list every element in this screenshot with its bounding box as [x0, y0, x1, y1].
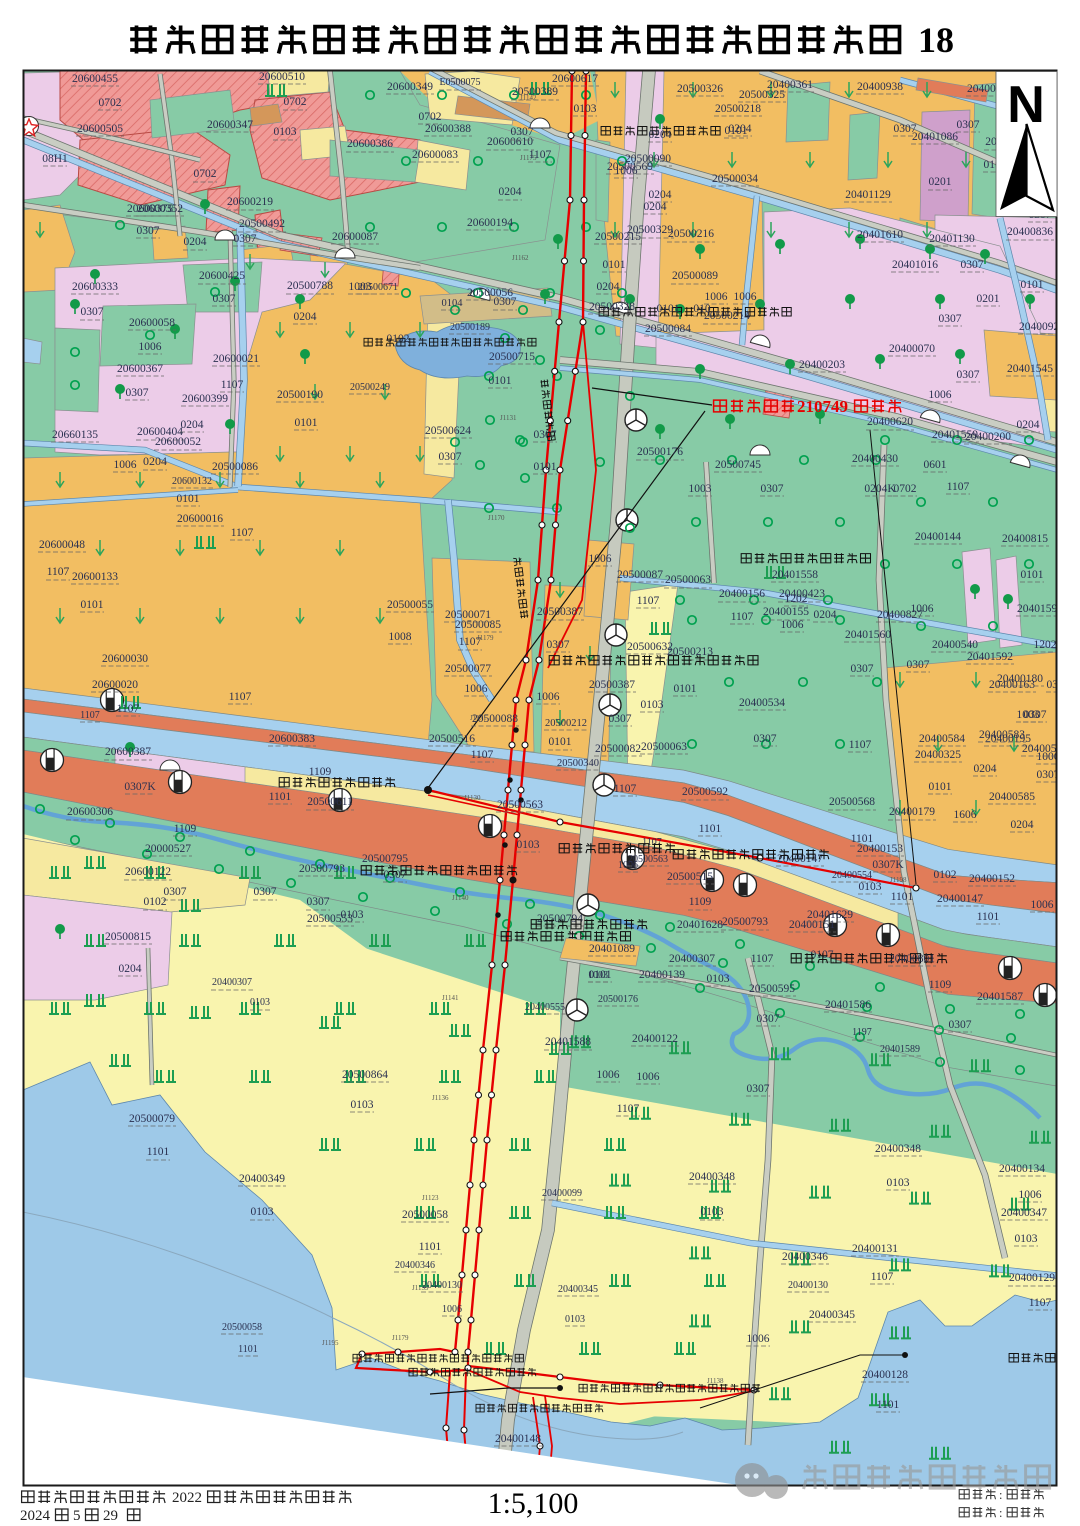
svg-text:20500063: 20500063: [641, 741, 687, 753]
svg-text:1006: 1006: [465, 683, 488, 695]
svg-text:0102: 0102: [144, 896, 167, 908]
svg-text:20400836: 20400836: [1007, 226, 1053, 238]
svg-text:20401586: 20401586: [825, 999, 871, 1011]
svg-text:0307K: 0307K: [872, 859, 904, 871]
svg-text:20500592: 20500592: [682, 786, 728, 798]
svg-text:20400099: 20400099: [542, 1188, 582, 1199]
svg-text:20600016: 20600016: [177, 513, 223, 525]
svg-text:0204: 0204: [974, 763, 997, 775]
svg-text::: :: [999, 1488, 1002, 1502]
svg-text:20401610: 20401610: [857, 229, 903, 241]
svg-text:20600030: 20600030: [102, 653, 148, 665]
svg-text:0307: 0307: [547, 639, 570, 651]
svg-text:20401588: 20401588: [545, 1036, 591, 1048]
svg-text:20500212: 20500212: [545, 718, 587, 729]
svg-text:0307: 0307: [126, 387, 149, 399]
svg-text:20500387: 20500387: [537, 606, 583, 618]
svg-text:20600387: 20600387: [105, 746, 151, 758]
svg-text:0102: 0102: [934, 869, 957, 881]
svg-text:20400156: 20400156: [719, 588, 765, 600]
svg-text:20400131: 20400131: [852, 1243, 898, 1255]
svg-text:20500492: 20500492: [239, 218, 285, 230]
svg-text:20500624: 20500624: [425, 425, 471, 437]
svg-text:J1130: J1130: [464, 794, 481, 802]
svg-text:20500815: 20500815: [105, 931, 151, 943]
svg-text:20400134: 20400134: [999, 1163, 1045, 1175]
svg-text::: :: [999, 1506, 1002, 1520]
svg-text:20400139: 20400139: [639, 969, 685, 981]
svg-text:1109: 1109: [929, 979, 952, 991]
svg-text:20500084: 20500084: [645, 323, 691, 335]
svg-text:1003: 1003: [689, 483, 712, 495]
svg-text:0702: 0702: [419, 111, 442, 123]
svg-text:20500595: 20500595: [749, 983, 795, 995]
svg-text:J1136: J1136: [432, 1094, 449, 1102]
svg-text:0204: 0204: [649, 129, 672, 141]
svg-text:20400307: 20400307: [212, 977, 252, 988]
svg-text:20400620: 20400620: [867, 416, 913, 428]
svg-text:1107: 1107: [529, 149, 552, 161]
svg-text:1606: 1606: [954, 809, 977, 821]
svg-text:08H1: 08H1: [42, 153, 68, 165]
svg-text:20400128: 20400128: [862, 1369, 908, 1381]
svg-text:1006: 1006: [734, 291, 757, 303]
svg-text:0204: 0204: [814, 609, 837, 621]
svg-text:5: 5: [73, 1508, 81, 1524]
svg-text:1006: 1006: [929, 389, 952, 401]
svg-text:0702: 0702: [99, 97, 122, 109]
svg-text:20600021: 20600021: [213, 353, 259, 365]
svg-text:20000527: 20000527: [145, 843, 191, 855]
svg-text:1107: 1107: [117, 703, 140, 715]
svg-text:20660135: 20660135: [52, 429, 98, 441]
svg-text:1109: 1109: [309, 766, 332, 778]
svg-text:20400554: 20400554: [832, 870, 872, 881]
svg-text:0204: 0204: [143, 454, 167, 468]
svg-text:20400179: 20400179: [889, 806, 935, 818]
svg-text:20500328: 20500328: [589, 301, 635, 313]
svg-text:20401628: 20401628: [677, 919, 723, 931]
svg-text:20500189: 20500189: [450, 322, 490, 333]
svg-text:20600399: 20600399: [182, 393, 228, 405]
svg-text:20500563: 20500563: [628, 854, 668, 865]
svg-text:0101: 0101: [177, 493, 200, 505]
svg-text:0307: 0307: [949, 1019, 972, 1031]
svg-text:20401545: 20401545: [1007, 363, 1053, 375]
svg-text:0204: 0204: [649, 189, 672, 201]
svg-text:1006: 1006: [705, 291, 728, 303]
svg-text:0201: 0201: [977, 293, 1000, 305]
svg-text:20400555: 20400555: [525, 1002, 565, 1013]
svg-text:0101: 0101: [295, 417, 318, 429]
svg-text:1107: 1107: [231, 527, 254, 539]
svg-text:0307: 0307: [1024, 709, 1047, 721]
svg-text:20500216: 20500216: [668, 228, 714, 240]
svg-text:20500058: 20500058: [222, 1322, 262, 1333]
svg-text:20500082: 20500082: [595, 743, 641, 755]
svg-text:1202: 1202: [785, 593, 808, 605]
svg-text:20500214: 20500214: [704, 310, 750, 322]
svg-text:20600383: 20600383: [269, 733, 315, 745]
svg-text:20500563: 20500563: [497, 799, 543, 811]
svg-text:20400534: 20400534: [739, 697, 785, 709]
svg-text:20500632: 20500632: [627, 641, 673, 653]
svg-text:1006: 1006: [442, 1304, 462, 1315]
svg-text:20600510: 20600510: [259, 71, 305, 83]
svg-text:0101: 0101: [549, 736, 572, 748]
svg-text:20500325: 20500325: [739, 89, 785, 101]
svg-text:20500793: 20500793: [299, 863, 345, 875]
svg-text:1107: 1107: [614, 783, 637, 795]
svg-text:20500611: 20500611: [307, 796, 353, 808]
svg-text:20600020: 20600020: [92, 679, 138, 691]
svg-text:1006: 1006: [637, 1071, 660, 1083]
svg-text:20400122: 20400122: [632, 1033, 678, 1045]
svg-text:0307: 0307: [757, 1013, 780, 1025]
svg-text:0307: 0307: [851, 663, 874, 675]
svg-text:0103: 0103: [351, 1099, 374, 1111]
svg-text:1006: 1006: [589, 553, 612, 565]
svg-text:20600083: 20600083: [412, 149, 458, 161]
svg-text:1107: 1107: [471, 749, 494, 761]
svg-text:1107: 1107: [642, 837, 662, 848]
svg-text:0101: 0101: [1021, 279, 1044, 291]
svg-text:20400180: 20400180: [997, 673, 1043, 685]
svg-text:20500088: 20500088: [472, 713, 518, 725]
svg-text:0204K: 0204K: [864, 483, 896, 495]
svg-text:2024: 2024: [20, 1508, 51, 1524]
svg-text:20500190: 20500190: [277, 389, 323, 401]
svg-text:20500326: 20500326: [677, 83, 723, 95]
svg-text:0307: 0307: [307, 896, 330, 908]
svg-text:1107: 1107: [221, 379, 244, 391]
svg-text:1101: 1101: [699, 823, 722, 835]
svg-text:0307: 0307: [213, 293, 236, 305]
svg-text:20600219: 20600219: [227, 196, 273, 208]
svg-text:0103: 0103: [274, 126, 297, 138]
svg-text:0103: 0103: [887, 1177, 910, 1189]
svg-text:1109: 1109: [689, 896, 712, 908]
svg-text:0101: 0101: [657, 303, 680, 315]
svg-text:0204: 0204: [119, 963, 142, 975]
svg-text:20500215: 20500215: [595, 231, 641, 243]
svg-text:0307: 0307: [534, 429, 557, 441]
svg-text:20500788: 20500788: [287, 280, 333, 292]
svg-text:1006: 1006: [597, 1069, 620, 1081]
svg-text:1101: 1101: [269, 791, 292, 803]
svg-text:0307: 0307: [939, 313, 962, 325]
svg-text:0307: 0307: [747, 1083, 770, 1095]
svg-text:1006: 1006: [1031, 899, 1054, 911]
svg-text:20400430: 20400430: [852, 453, 898, 465]
svg-text:1107: 1107: [947, 481, 970, 493]
svg-text:20400203: 20400203: [799, 359, 845, 371]
svg-text:1107: 1107: [80, 710, 100, 721]
svg-text:0204: 0204: [184, 236, 207, 248]
svg-text:1008: 1008: [389, 631, 412, 643]
svg-text:20400070: 20400070: [889, 343, 935, 355]
svg-text:0101: 0101: [1021, 569, 1044, 581]
svg-text:20400540: 20400540: [932, 639, 978, 651]
svg-text:J1179: J1179: [392, 1334, 409, 1342]
svg-text:20401558: 20401558: [772, 569, 818, 581]
svg-text:E0500075: E0500075: [439, 77, 480, 88]
svg-text:20400130: 20400130: [422, 1280, 462, 1291]
svg-text:0307: 0307: [907, 659, 930, 671]
svg-text:20500077: 20500077: [445, 663, 491, 675]
svg-text:0307: 0307: [234, 233, 257, 245]
svg-text:20500864: 20500864: [342, 1069, 388, 1081]
svg-text:0307K: 0307K: [124, 781, 156, 793]
svg-text:1107: 1107: [637, 595, 660, 607]
svg-text:J1170: J1170: [488, 514, 505, 522]
svg-text:20500079: 20500079: [129, 1113, 175, 1125]
svg-text:20500515: 20500515: [667, 871, 713, 883]
svg-text:0103: 0103: [251, 1206, 274, 1218]
svg-text:20500795: 20500795: [362, 853, 408, 865]
svg-text:0101: 0101: [81, 599, 104, 611]
svg-text:1006: 1006: [1019, 1189, 1042, 1201]
svg-text:0204: 0204: [1011, 819, 1034, 831]
svg-text:20400345: 20400345: [558, 1284, 598, 1295]
svg-text:0103: 0103: [565, 1314, 585, 1325]
svg-text:20600388: 20600388: [425, 123, 471, 135]
svg-text:20600349: 20600349: [387, 81, 433, 93]
svg-text:20500176: 20500176: [637, 446, 683, 458]
svg-text:J1162: J1162: [512, 254, 529, 262]
svg-text:20400347: 20400347: [1001, 1207, 1047, 1219]
svg-text:20400130: 20400130: [788, 1280, 828, 1291]
svg-text:20401559: 20401559: [932, 429, 978, 441]
svg-text:20500089: 20500089: [672, 270, 718, 282]
svg-text:20600386: 20600386: [347, 138, 393, 150]
svg-text:0307: 0307: [137, 225, 160, 237]
svg-text:20600132: 20600132: [172, 476, 212, 487]
svg-text:1107: 1107: [731, 611, 754, 623]
svg-text:20401086: 20401086: [912, 131, 958, 143]
svg-text:20500058: 20500058: [402, 1209, 448, 1221]
svg-text:20600333: 20600333: [72, 281, 118, 293]
svg-text:1109: 1109: [174, 823, 197, 835]
svg-text:2022: 2022: [172, 1490, 202, 1506]
svg-text:0204: 0204: [597, 281, 620, 293]
svg-text:J1123: J1123: [422, 1194, 439, 1202]
svg-text:0601: 0601: [924, 459, 947, 471]
svg-text:20400147: 20400147: [937, 893, 983, 905]
svg-text:0204: 0204: [181, 419, 204, 431]
svg-text:0101: 0101: [725, 125, 748, 137]
svg-text:0307: 0307: [439, 451, 462, 463]
svg-text:20400346: 20400346: [782, 1251, 828, 1263]
svg-text:1107: 1107: [849, 739, 872, 751]
svg-text:20400585: 20400585: [989, 791, 1035, 803]
svg-text:1101: 1101: [877, 1399, 900, 1411]
svg-text:20500387: 20500387: [589, 679, 635, 691]
svg-text:20600048: 20600048: [39, 539, 85, 551]
svg-text:0101: 0101: [674, 683, 697, 695]
svg-text:1101: 1101: [147, 1146, 170, 1158]
svg-text:1101: 1101: [891, 891, 914, 903]
svg-text:0103: 0103: [1015, 1233, 1038, 1245]
svg-text:20500034: 20500034: [712, 173, 758, 185]
svg-text:20401089: 20401089: [589, 943, 635, 955]
svg-text:0204: 0204: [294, 311, 317, 323]
svg-text:20500087: 20500087: [617, 569, 663, 581]
svg-text:J1131: J1131: [500, 414, 517, 422]
svg-text:1107: 1107: [229, 691, 252, 703]
svg-text:0101: 0101: [534, 461, 557, 473]
svg-text:20600052: 20600052: [155, 436, 201, 448]
svg-text:20401592: 20401592: [967, 651, 1013, 663]
svg-text:1101: 1101: [977, 911, 1000, 923]
svg-text:0307: 0307: [754, 733, 777, 745]
svg-text:0103: 0103: [701, 1206, 724, 1218]
svg-text:1107: 1107: [459, 636, 482, 648]
svg-text:20400155: 20400155: [763, 606, 809, 618]
svg-text:J1140: J1140: [452, 894, 469, 902]
svg-text:1107: 1107: [751, 953, 774, 965]
svg-text:20500063: 20500063: [665, 574, 711, 586]
svg-text:1006: 1006: [139, 341, 162, 353]
svg-text:20400348: 20400348: [689, 1171, 735, 1183]
svg-text:20500516: 20500516: [429, 733, 475, 745]
svg-text:1107: 1107: [871, 1271, 894, 1283]
svg-text:20400938: 20400938: [857, 81, 903, 93]
svg-text:20400346: 20400346: [395, 1260, 435, 1271]
svg-text:20401629: 20401629: [807, 909, 853, 921]
svg-text:J1138: J1138: [707, 1377, 724, 1385]
svg-text:1006: 1006: [537, 691, 560, 703]
svg-text:1006: 1006: [114, 459, 137, 471]
svg-text:20400144: 20400144: [915, 531, 961, 543]
svg-text:20401016: 20401016: [892, 259, 938, 271]
svg-text:20600087: 20600087: [332, 231, 378, 243]
svg-text:1101: 1101: [238, 1344, 258, 1355]
svg-text:20500249: 20500249: [350, 382, 390, 393]
svg-text:20500071: 20500071: [445, 609, 491, 621]
svg-text:20500340: 20500340: [557, 758, 599, 769]
svg-text:0307: 0307: [81, 306, 104, 318]
svg-text:20600306: 20600306: [67, 806, 113, 818]
svg-text:1202: 1202: [1034, 639, 1057, 651]
svg-text:20600367: 20600367: [117, 363, 163, 375]
svg-text:0103: 0103: [517, 839, 540, 851]
svg-text:0103: 0103: [341, 909, 364, 921]
svg-text:20500389: 20500389: [512, 86, 558, 98]
svg-text:0201: 0201: [929, 176, 952, 188]
svg-text:20401129: 20401129: [845, 189, 891, 201]
svg-text:20400325: 20400325: [915, 749, 961, 761]
svg-text:20600058: 20600058: [129, 317, 175, 329]
svg-text:1:5,100: 1:5,100: [488, 1487, 579, 1520]
svg-text:20500793: 20500793: [722, 916, 768, 928]
svg-text:0307: 0307: [164, 886, 187, 898]
svg-text:1107: 1107: [617, 1103, 640, 1115]
svg-text:20600505: 20600505: [77, 123, 123, 135]
svg-text:20500090: 20500090: [625, 153, 671, 165]
svg-text:0103: 0103: [707, 973, 730, 985]
svg-text:20600347: 20600347: [207, 119, 253, 131]
svg-text:J1198: J1198: [890, 876, 907, 884]
svg-text:0307: 0307: [511, 126, 534, 138]
svg-text:20500218: 20500218: [715, 103, 761, 115]
svg-text:1003: 1003: [588, 970, 608, 981]
svg-text:1107: 1107: [1029, 1297, 1052, 1309]
svg-text:0702: 0702: [894, 483, 917, 495]
svg-text:20600122: 20600122: [125, 866, 171, 878]
svg-text:20400583: 20400583: [979, 729, 1025, 741]
svg-text:0101: 0101: [603, 259, 626, 271]
svg-text:0307: 0307: [961, 259, 984, 271]
svg-text:J1141: J1141: [442, 994, 459, 1002]
svg-text:J1195: J1195: [322, 1339, 339, 1347]
svg-text:20401560: 20401560: [845, 629, 891, 641]
svg-text:1006: 1006: [615, 165, 638, 177]
svg-text:0103: 0103: [641, 699, 664, 711]
svg-text:18: 18: [918, 20, 954, 60]
svg-text:20500086: 20500086: [212, 461, 258, 473]
svg-text:20500056: 20500056: [467, 287, 513, 299]
svg-text:20400307: 20400307: [669, 953, 715, 965]
svg-text:0101: 0101: [489, 375, 512, 387]
svg-text:20500715: 20500715: [489, 351, 535, 363]
svg-text:0204: 0204: [499, 186, 522, 198]
svg-text:20401587: 20401587: [977, 991, 1023, 1003]
svg-text:20400349: 20400349: [239, 1173, 285, 1185]
svg-text:20400345: 20400345: [809, 1309, 855, 1321]
svg-text:0307: 0307: [957, 369, 980, 381]
svg-text:20600455: 20600455: [72, 73, 118, 85]
svg-text:20401589: 20401589: [880, 1044, 920, 1055]
svg-text:20400801: 20400801: [889, 953, 935, 965]
svg-text:0307: 0307: [761, 483, 784, 495]
svg-text:20600617: 20600617: [552, 73, 598, 85]
svg-text:20400584: 20400584: [919, 733, 965, 745]
svg-text:20600133: 20600133: [72, 571, 118, 583]
svg-text:0307: 0307: [254, 886, 277, 898]
svg-text:20500055: 20500055: [387, 599, 433, 611]
svg-text:0101: 0101: [929, 781, 952, 793]
svg-text:1101: 1101: [419, 1241, 442, 1253]
svg-text:20500176: 20500176: [598, 994, 638, 1005]
svg-text:0307: 0307: [609, 713, 632, 725]
svg-text:20401130: 20401130: [929, 233, 975, 245]
svg-text:1006: 1006: [747, 1333, 770, 1345]
svg-text:0702: 0702: [284, 96, 307, 108]
svg-text:0204: 0204: [1017, 419, 1040, 431]
svg-text:20400148: 20400148: [495, 1433, 541, 1445]
svg-text:20600375: 20600375: [127, 203, 173, 215]
svg-text:1006: 1006: [911, 603, 934, 615]
svg-text:0103: 0103: [574, 103, 597, 115]
svg-text:1197: 1197: [852, 1027, 872, 1038]
svg-text:20400348: 20400348: [875, 1143, 921, 1155]
svg-text:0104: 0104: [442, 298, 464, 309]
svg-text:1006: 1006: [781, 619, 804, 631]
svg-text:20500568: 20500568: [829, 796, 875, 808]
svg-text:29: 29: [103, 1508, 118, 1524]
svg-text:0702: 0702: [194, 168, 217, 180]
svg-text:1101: 1101: [851, 833, 874, 845]
svg-text:20400152: 20400152: [969, 873, 1015, 885]
svg-text:210749: 210749: [797, 397, 848, 416]
svg-text:20400815: 20400815: [1002, 533, 1048, 545]
svg-text:0204: 0204: [644, 201, 667, 213]
svg-text:0307: 0307: [957, 119, 980, 131]
svg-text:0103: 0103: [250, 997, 270, 1008]
svg-text:1107: 1107: [47, 566, 70, 578]
svg-text:20500745: 20500745: [715, 459, 761, 471]
